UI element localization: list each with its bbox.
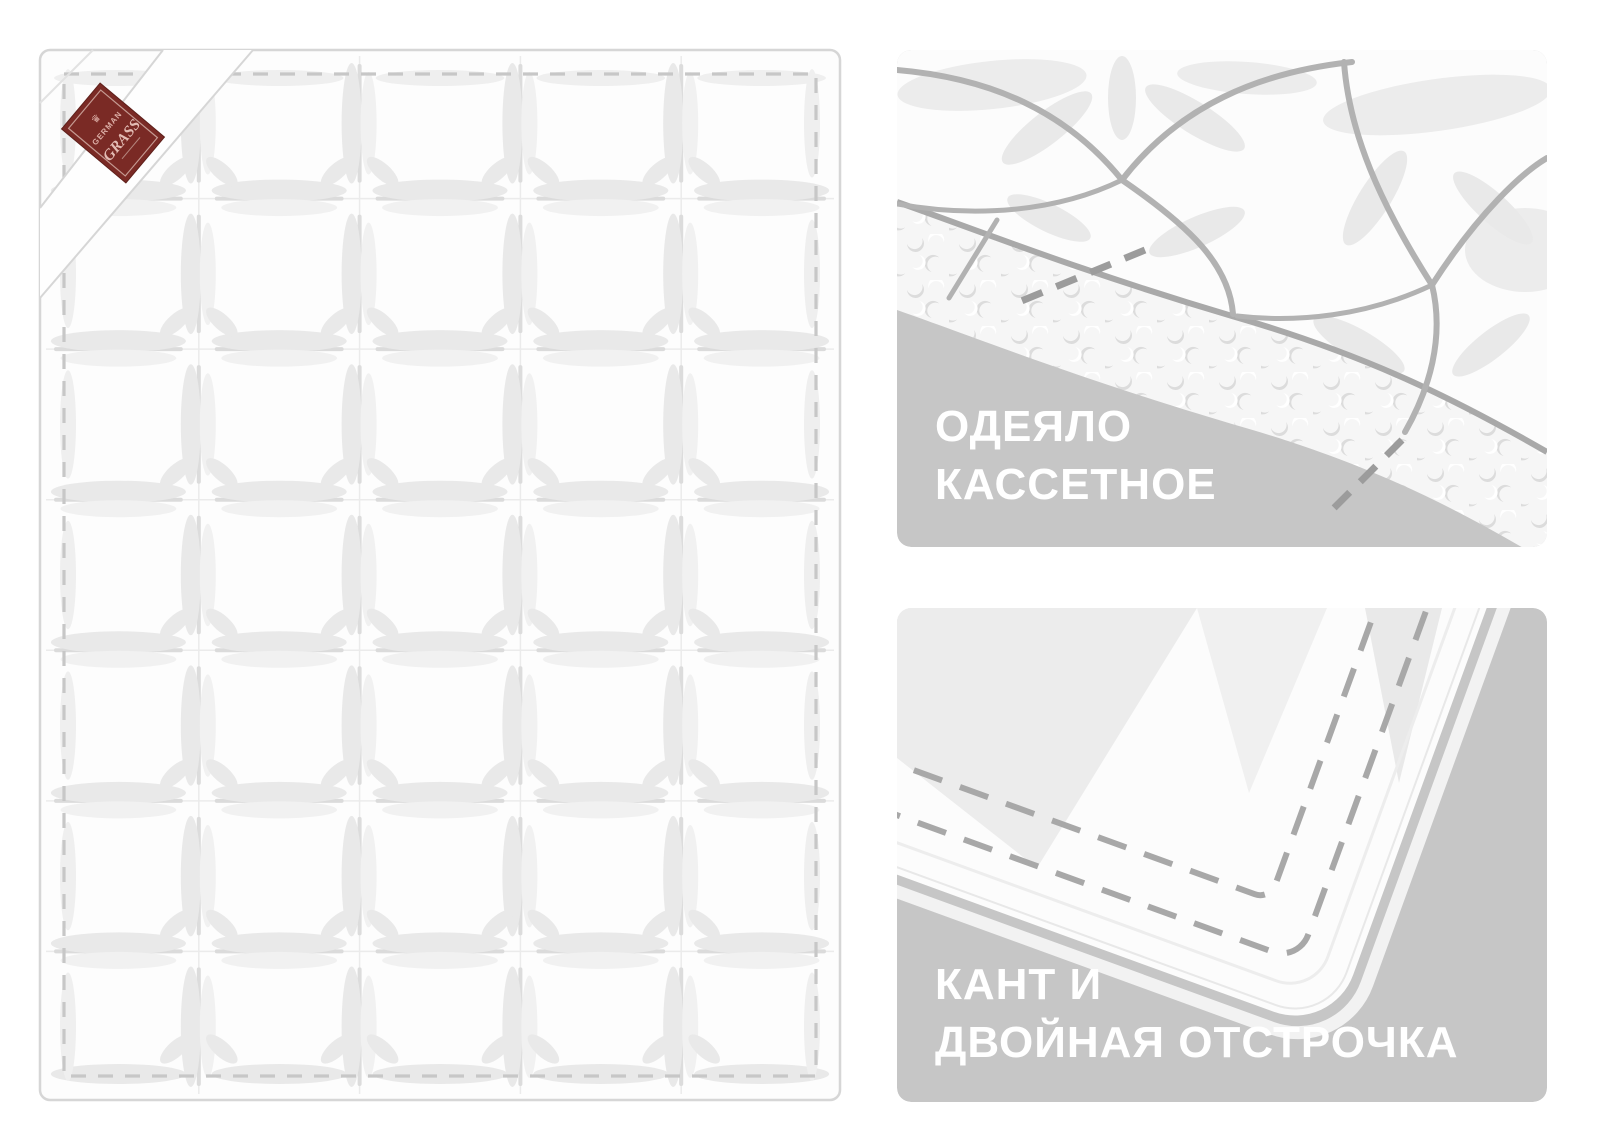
cassette-panel: ОДЕЯЛО КАССЕТНОЕ — [897, 50, 1547, 547]
piping-caption: КАНТ И ДВОЙНАЯ ОТСТРОЧКА — [935, 956, 1458, 1072]
piping-caption-line2: ДВОЙНАЯ ОТСТРОЧКА — [935, 1014, 1458, 1072]
cassette-caption-line1: ОДЕЯЛО — [935, 398, 1217, 456]
cassette-caption-line2: КАССЕТНОЕ — [935, 456, 1217, 514]
cassette-caption: ОДЕЯЛО КАССЕТНОЕ — [935, 398, 1217, 514]
piping-caption-line1: КАНТ И — [935, 956, 1458, 1014]
quilted-blanket-illustration: ♛GERMANGRASS — [38, 48, 842, 1102]
piping-panel: КАНТ И ДВОЙНАЯ ОТСТРОЧКА — [897, 608, 1547, 1102]
bedding-product-illustration: ♛GERMANGRASS — [0, 0, 1600, 1140]
